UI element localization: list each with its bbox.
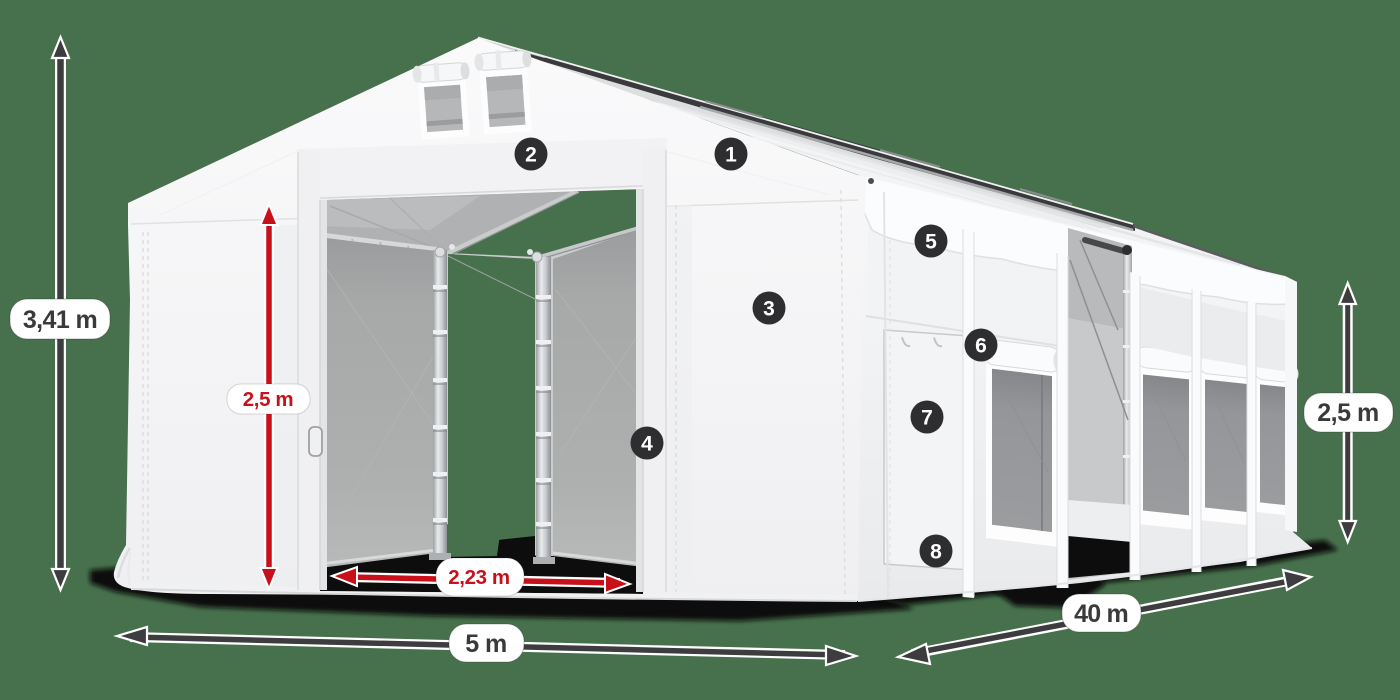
svg-text:2,23 m: 2,23 m bbox=[448, 566, 509, 589]
svg-text:7: 7 bbox=[921, 407, 933, 430]
svg-text:5: 5 bbox=[925, 231, 937, 254]
svg-text:5 m: 5 m bbox=[465, 630, 507, 658]
svg-text:2,5 m: 2,5 m bbox=[243, 388, 293, 411]
svg-text:2: 2 bbox=[525, 144, 537, 167]
svg-text:3: 3 bbox=[763, 298, 775, 321]
svg-text:4: 4 bbox=[641, 433, 653, 456]
svg-text:6: 6 bbox=[975, 335, 987, 358]
svg-text:8: 8 bbox=[930, 541, 942, 564]
svg-text:3,41 m: 3,41 m bbox=[23, 306, 97, 334]
svg-text:1: 1 bbox=[725, 144, 737, 167]
svg-text:40 m: 40 m bbox=[1074, 600, 1128, 628]
svg-text:2,5 m: 2,5 m bbox=[1317, 399, 1378, 427]
